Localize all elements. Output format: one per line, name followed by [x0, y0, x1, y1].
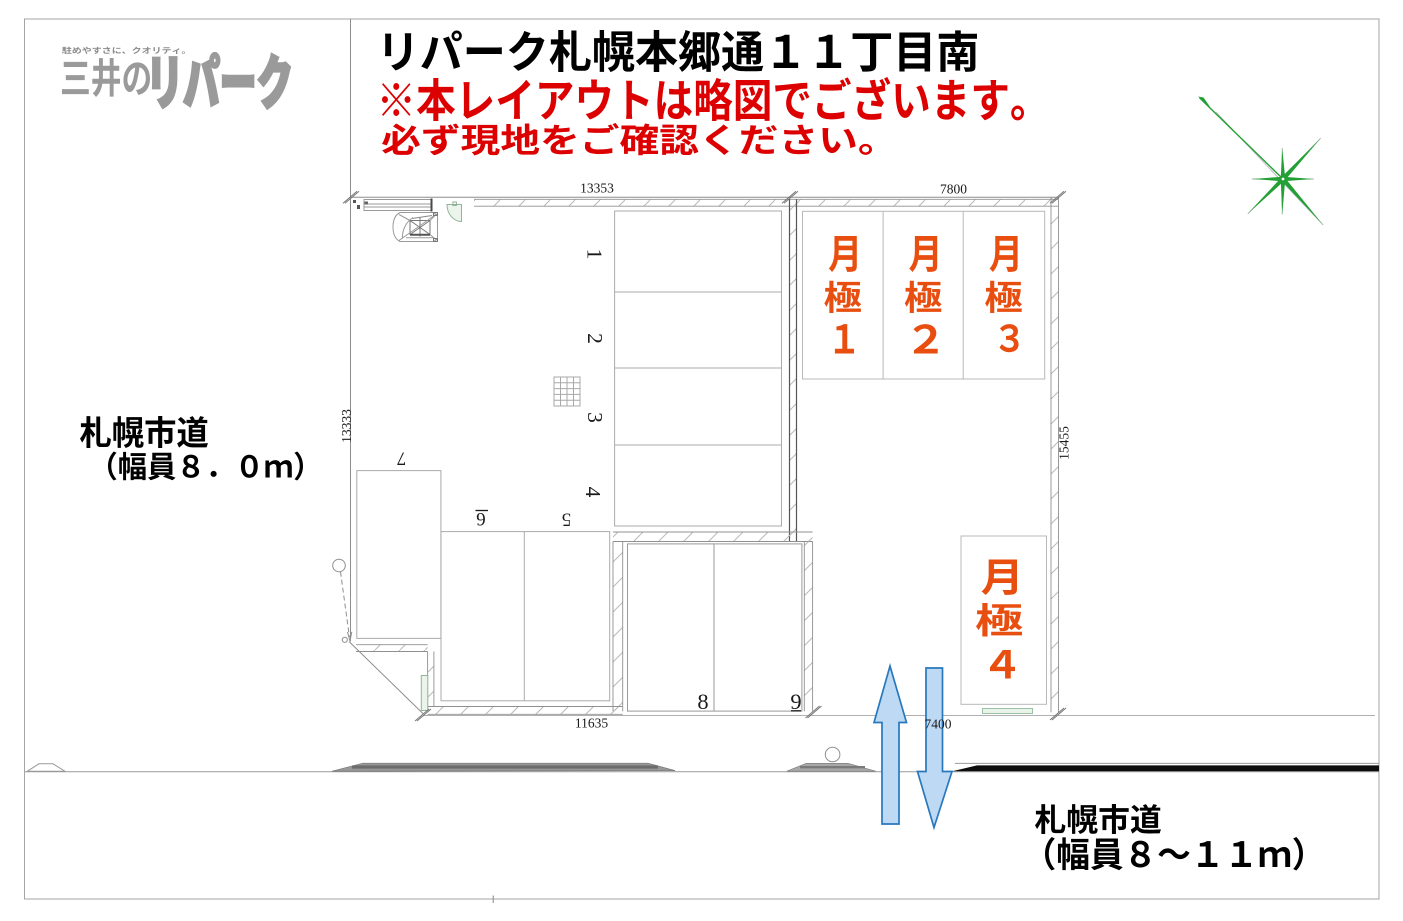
svg-text:7800: 7800: [940, 182, 967, 197]
svg-text:3: 3: [583, 412, 607, 423]
svg-text:7: 7: [397, 447, 407, 468]
svg-text:2: 2: [583, 333, 607, 344]
svg-text:5: 5: [562, 509, 572, 530]
svg-text:15455: 15455: [1056, 426, 1071, 460]
svg-text:1: 1: [583, 249, 607, 260]
svg-text:11635: 11635: [575, 716, 608, 731]
svg-text:13333: 13333: [339, 409, 354, 443]
svg-text:13353: 13353: [580, 181, 614, 196]
svg-text:7400: 7400: [925, 717, 952, 732]
svg-text:4: 4: [581, 487, 605, 498]
svg-text:8: 8: [697, 689, 708, 714]
